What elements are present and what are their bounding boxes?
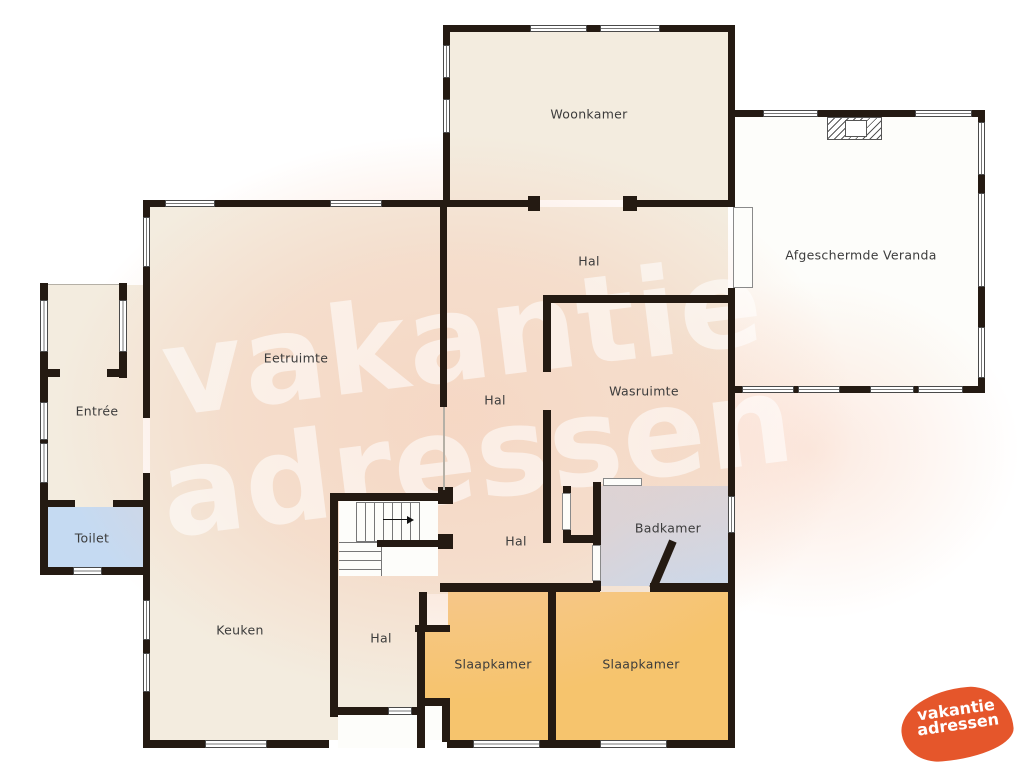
room-label-keuken: Keuken (216, 623, 263, 638)
room-label-hal-top: Hal (578, 254, 599, 269)
room-label-eetruimte: Eetruimte (264, 351, 329, 366)
room-label-hal-lower: Hal (505, 534, 526, 549)
room-label-hal-mid: Hal (484, 393, 505, 408)
room-label-badkamer: Badkamer (635, 521, 701, 536)
room-label-entree: Entrée (76, 404, 119, 419)
room-label-wasruimte: Wasruimte (609, 384, 679, 399)
room-label-woonkamer: Woonkamer (550, 107, 627, 122)
room-label-slaapkamer-right: Slaapkamer (602, 657, 679, 672)
floorplan-canvas: vakantie adressen Woonkamer Afgeschermde… (0, 0, 1024, 768)
vakantieadressen-logo: vakantie adressen (901, 688, 1013, 760)
room-label-hal-bottom: Hal (370, 631, 391, 646)
room-label-slaapkamer-left: Slaapkamer (454, 657, 531, 672)
room-label-veranda: Afgeschermde Veranda (785, 248, 936, 263)
label-layer: Woonkamer Afgeschermde Veranda Hal Eetru… (0, 0, 1024, 768)
room-label-toilet: Toilet (75, 531, 110, 546)
